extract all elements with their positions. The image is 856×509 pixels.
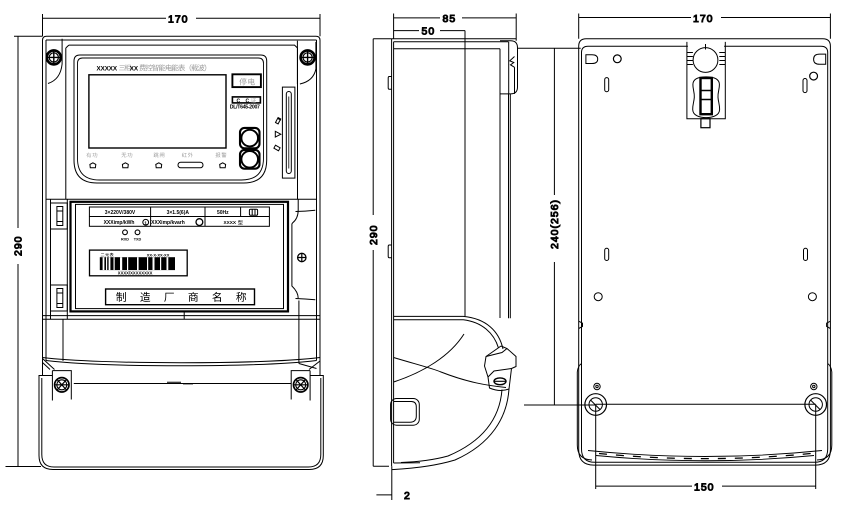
svg-text:1: 1 [144,220,147,225]
svg-text:240(256): 240(256) [549,199,561,249]
svg-text:XXXX/XXXXXXXX: XXXX/XXXXXXXX [118,271,153,276]
svg-text:290: 290 [368,224,380,245]
svg-text:2: 2 [404,490,411,502]
svg-text:150: 150 [694,481,715,493]
svg-text:170: 170 [693,13,714,25]
svg-text:TXD: TXD [134,238,142,242]
svg-text:290: 290 [13,235,25,256]
svg-text:XX: XX [130,65,139,72]
svg-text:3×220V/380V: 3×220V/380V [105,210,136,216]
svg-text:C: C [237,98,241,104]
svg-text:85: 85 [443,13,457,25]
svg-text:50Hz: 50Hz [217,210,229,216]
svg-text:3×1.5(6)A: 3×1.5(6)A [167,210,190,216]
svg-text:170: 170 [168,14,189,26]
svg-text:XX·X·XX·XX: XX·X·XX·XX [147,252,170,257]
svg-text:XXXX: XXXX [224,220,237,225]
svg-text:50: 50 [422,26,436,38]
svg-text:XXXimp/kvarh: XXXimp/kvarh [151,220,185,226]
svg-text:DL/T645-2007: DL/T645-2007 [230,105,260,111]
svg-text:XXXimp/kWh: XXXimp/kWh [104,220,135,226]
svg-text:RXD: RXD [121,238,129,242]
svg-text:XXXXX: XXXXX [97,65,118,72]
svg-text:C: C [246,98,250,104]
